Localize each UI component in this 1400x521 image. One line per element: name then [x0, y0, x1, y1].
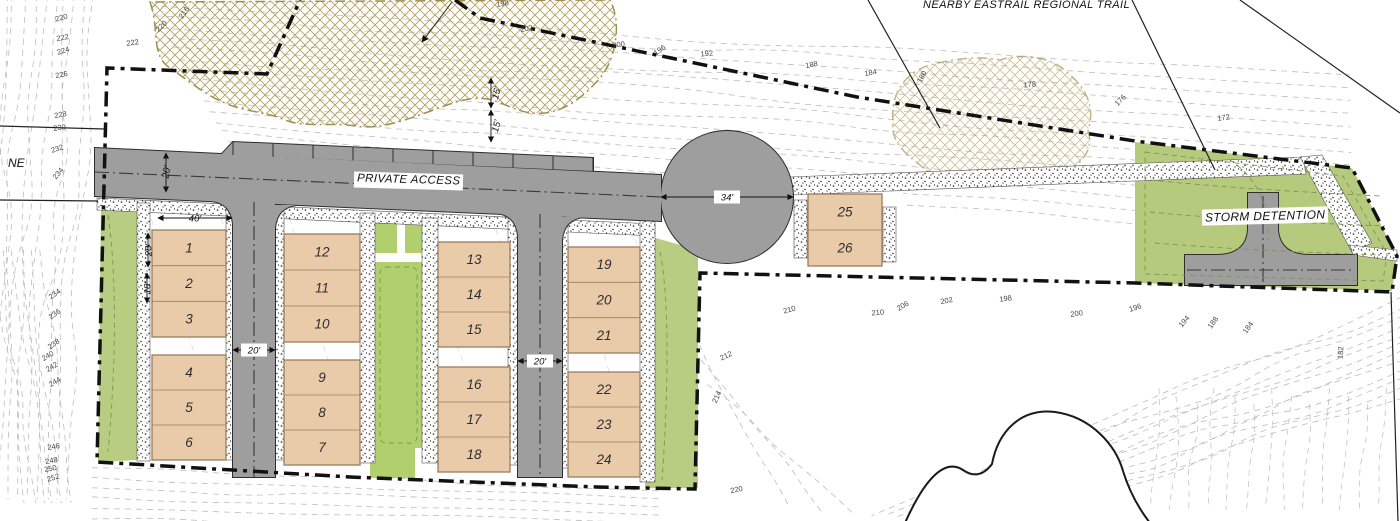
- block-13-15: 131415: [438, 242, 510, 347]
- lot-number: 2: [184, 276, 193, 291]
- contour-elevation: 214: [710, 389, 723, 404]
- lot-number: 9: [318, 370, 326, 385]
- contour-elevation: 210: [782, 304, 796, 316]
- contour-line: [1379, 388, 1387, 509]
- lot-number: 14: [466, 287, 481, 302]
- green-central-courtyard: [375, 262, 422, 448]
- walk-col4-east: [640, 220, 655, 482]
- dim-label: 20': [247, 346, 262, 357]
- lot-number: 5: [185, 400, 193, 415]
- dim-label: 15': [490, 118, 504, 134]
- block-1-3: 123: [152, 230, 226, 337]
- lot-number: 20: [595, 293, 612, 308]
- lot-number: 22: [595, 382, 612, 397]
- walk-col2-west: [275, 208, 284, 460]
- lot-number: 25: [836, 205, 853, 220]
- contour-line: [1303, 404, 1311, 511]
- contour-elevation: 196: [1128, 301, 1143, 313]
- lot-number: 8: [318, 405, 326, 420]
- site-plan: 1234561211109871314151617181920212223242…: [0, 0, 1400, 521]
- corner-line-ne: [1240, 0, 1400, 113]
- contour-elevation: 236: [47, 307, 62, 322]
- contour-elevation: 188: [804, 59, 818, 70]
- contour-line: [0, 0, 12, 500]
- contour-line: [92, 497, 662, 515]
- contour-line: [1188, 404, 1197, 511]
- contour-elevation: 194: [1177, 314, 1192, 329]
- lot-number: 17: [466, 412, 482, 427]
- contour-elevation: 198: [999, 293, 1013, 304]
- contour-line: [17, 0, 47, 499]
- contour-line: [1359, 404, 1367, 511]
- contour-line: [1170, 396, 1179, 510]
- contour-line: [4, 250, 36, 503]
- walk-col1-east: [226, 208, 233, 460]
- lot-number: 10: [314, 317, 330, 332]
- contour-elevation: 234: [51, 166, 66, 181]
- dim-label: 20': [533, 357, 548, 368]
- dim-label: 18': [143, 281, 154, 295]
- contour-line: [701, 360, 821, 511]
- block-4-6: 456: [152, 355, 226, 460]
- pond-outline: [905, 412, 1150, 521]
- lot-number: 21: [595, 328, 611, 343]
- lot-number: 19: [596, 257, 612, 272]
- contour-line: [1340, 396, 1349, 510]
- walk-2526-west: [794, 200, 807, 258]
- contour-line: [1265, 388, 1272, 509]
- contour-elevation: 202: [940, 295, 954, 306]
- lot-number: 1: [185, 240, 193, 255]
- contour-elevation: 228: [53, 109, 67, 120]
- contour-elevation: 230: [53, 122, 67, 133]
- contour-line: [92, 488, 662, 507]
- dim-label: 20': [144, 243, 155, 258]
- contour-elevation: 242: [44, 360, 59, 374]
- lot-number: 23: [595, 417, 612, 432]
- contour-elevation: 234: [47, 287, 62, 302]
- contour-elevation: 184: [1241, 320, 1256, 335]
- drive-aisle-west: [233, 202, 275, 477]
- canopy-hatch-west: [150, 0, 616, 127]
- contour-elevation: 172: [1217, 112, 1231, 123]
- street-name-partial: NE: [5, 155, 28, 171]
- street-edge-lower: [0, 200, 98, 201]
- dim-buffer-lower: 15': [490, 110, 504, 142]
- contour-line: [1283, 396, 1292, 510]
- contour-elevation: 200: [1070, 308, 1084, 319]
- contour-elevation: 222: [126, 37, 140, 48]
- contour-elevation: 206: [895, 299, 910, 313]
- lot-number: 26: [836, 241, 853, 256]
- lot-number: 11: [315, 281, 329, 296]
- contour-elevation: 220: [54, 12, 68, 24]
- contour-elevation: 246: [47, 441, 61, 452]
- block-16-18: 161718: [438, 367, 510, 472]
- street-edge-upper: [0, 126, 104, 129]
- lot-number: 6: [185, 435, 193, 450]
- lot-number: 16: [466, 377, 482, 392]
- green-west-buffer: [98, 205, 137, 462]
- contour-line: [67, 0, 94, 500]
- walk-col2-east: [360, 213, 375, 463]
- walk-2526-east: [883, 207, 896, 262]
- contour-elevation: 176: [1113, 93, 1128, 108]
- contour-line: [1226, 396, 1235, 510]
- block-25-26: 2526: [808, 194, 882, 266]
- nearby-trail-label: NEARBY EASTRAIL REGIONAL TRAIL: [920, 0, 1133, 13]
- contour-elevation: 188: [1206, 315, 1221, 330]
- block-22-24: 222324: [568, 372, 640, 477]
- contour-line: [1322, 388, 1330, 509]
- site-plan-canvas: 1234561211109871314151617181920212223242…: [0, 0, 1400, 521]
- contour-elevation: 222: [56, 32, 70, 43]
- lot-number: 15: [466, 322, 482, 337]
- dim-label: 40': [189, 214, 203, 225]
- contour-elevation: 192: [700, 48, 713, 58]
- contour-elevation: 212: [718, 349, 733, 362]
- lot-number: 4: [185, 365, 193, 380]
- contour-elevation: 182: [1335, 346, 1345, 359]
- contour-line: [695, 335, 790, 509]
- contour-elevation: 244: [47, 375, 62, 389]
- lot-number: 13: [466, 252, 482, 267]
- storm-detention-label: STORM DETENTION: [1202, 206, 1329, 225]
- contour-elevation: 184: [864, 67, 878, 78]
- green-courtyard-south: [370, 448, 415, 478]
- contour-elevation: 200: [612, 39, 626, 50]
- lot-number: 7: [318, 440, 326, 455]
- contour-line: [1208, 388, 1214, 509]
- block-10-12: 121110: [284, 234, 360, 342]
- contour-elevation: 226: [54, 69, 68, 80]
- private-access-label: PRIVATE ACCESS: [354, 171, 464, 190]
- block-19-21: 192021: [568, 247, 640, 353]
- lot-number: 12: [314, 245, 330, 260]
- contour-elevation: 220: [729, 484, 743, 495]
- lot-number: 24: [595, 452, 611, 467]
- lot-number: 18: [466, 447, 482, 462]
- walk-col3-west: [422, 218, 438, 463]
- block-7-9: 987: [284, 360, 360, 465]
- lot-number: 3: [185, 312, 193, 327]
- contour-elevation: 224: [56, 44, 71, 56]
- dim-label: 34': [721, 193, 735, 204]
- contour-elevation: 238: [46, 337, 61, 352]
- contour-line: [92, 509, 662, 521]
- contour-elevation: 178: [1023, 79, 1036, 89]
- contour-line: [0, 250, 24, 503]
- contour-elevation: 210: [871, 307, 884, 317]
- east-parcel-line: [1391, 292, 1398, 521]
